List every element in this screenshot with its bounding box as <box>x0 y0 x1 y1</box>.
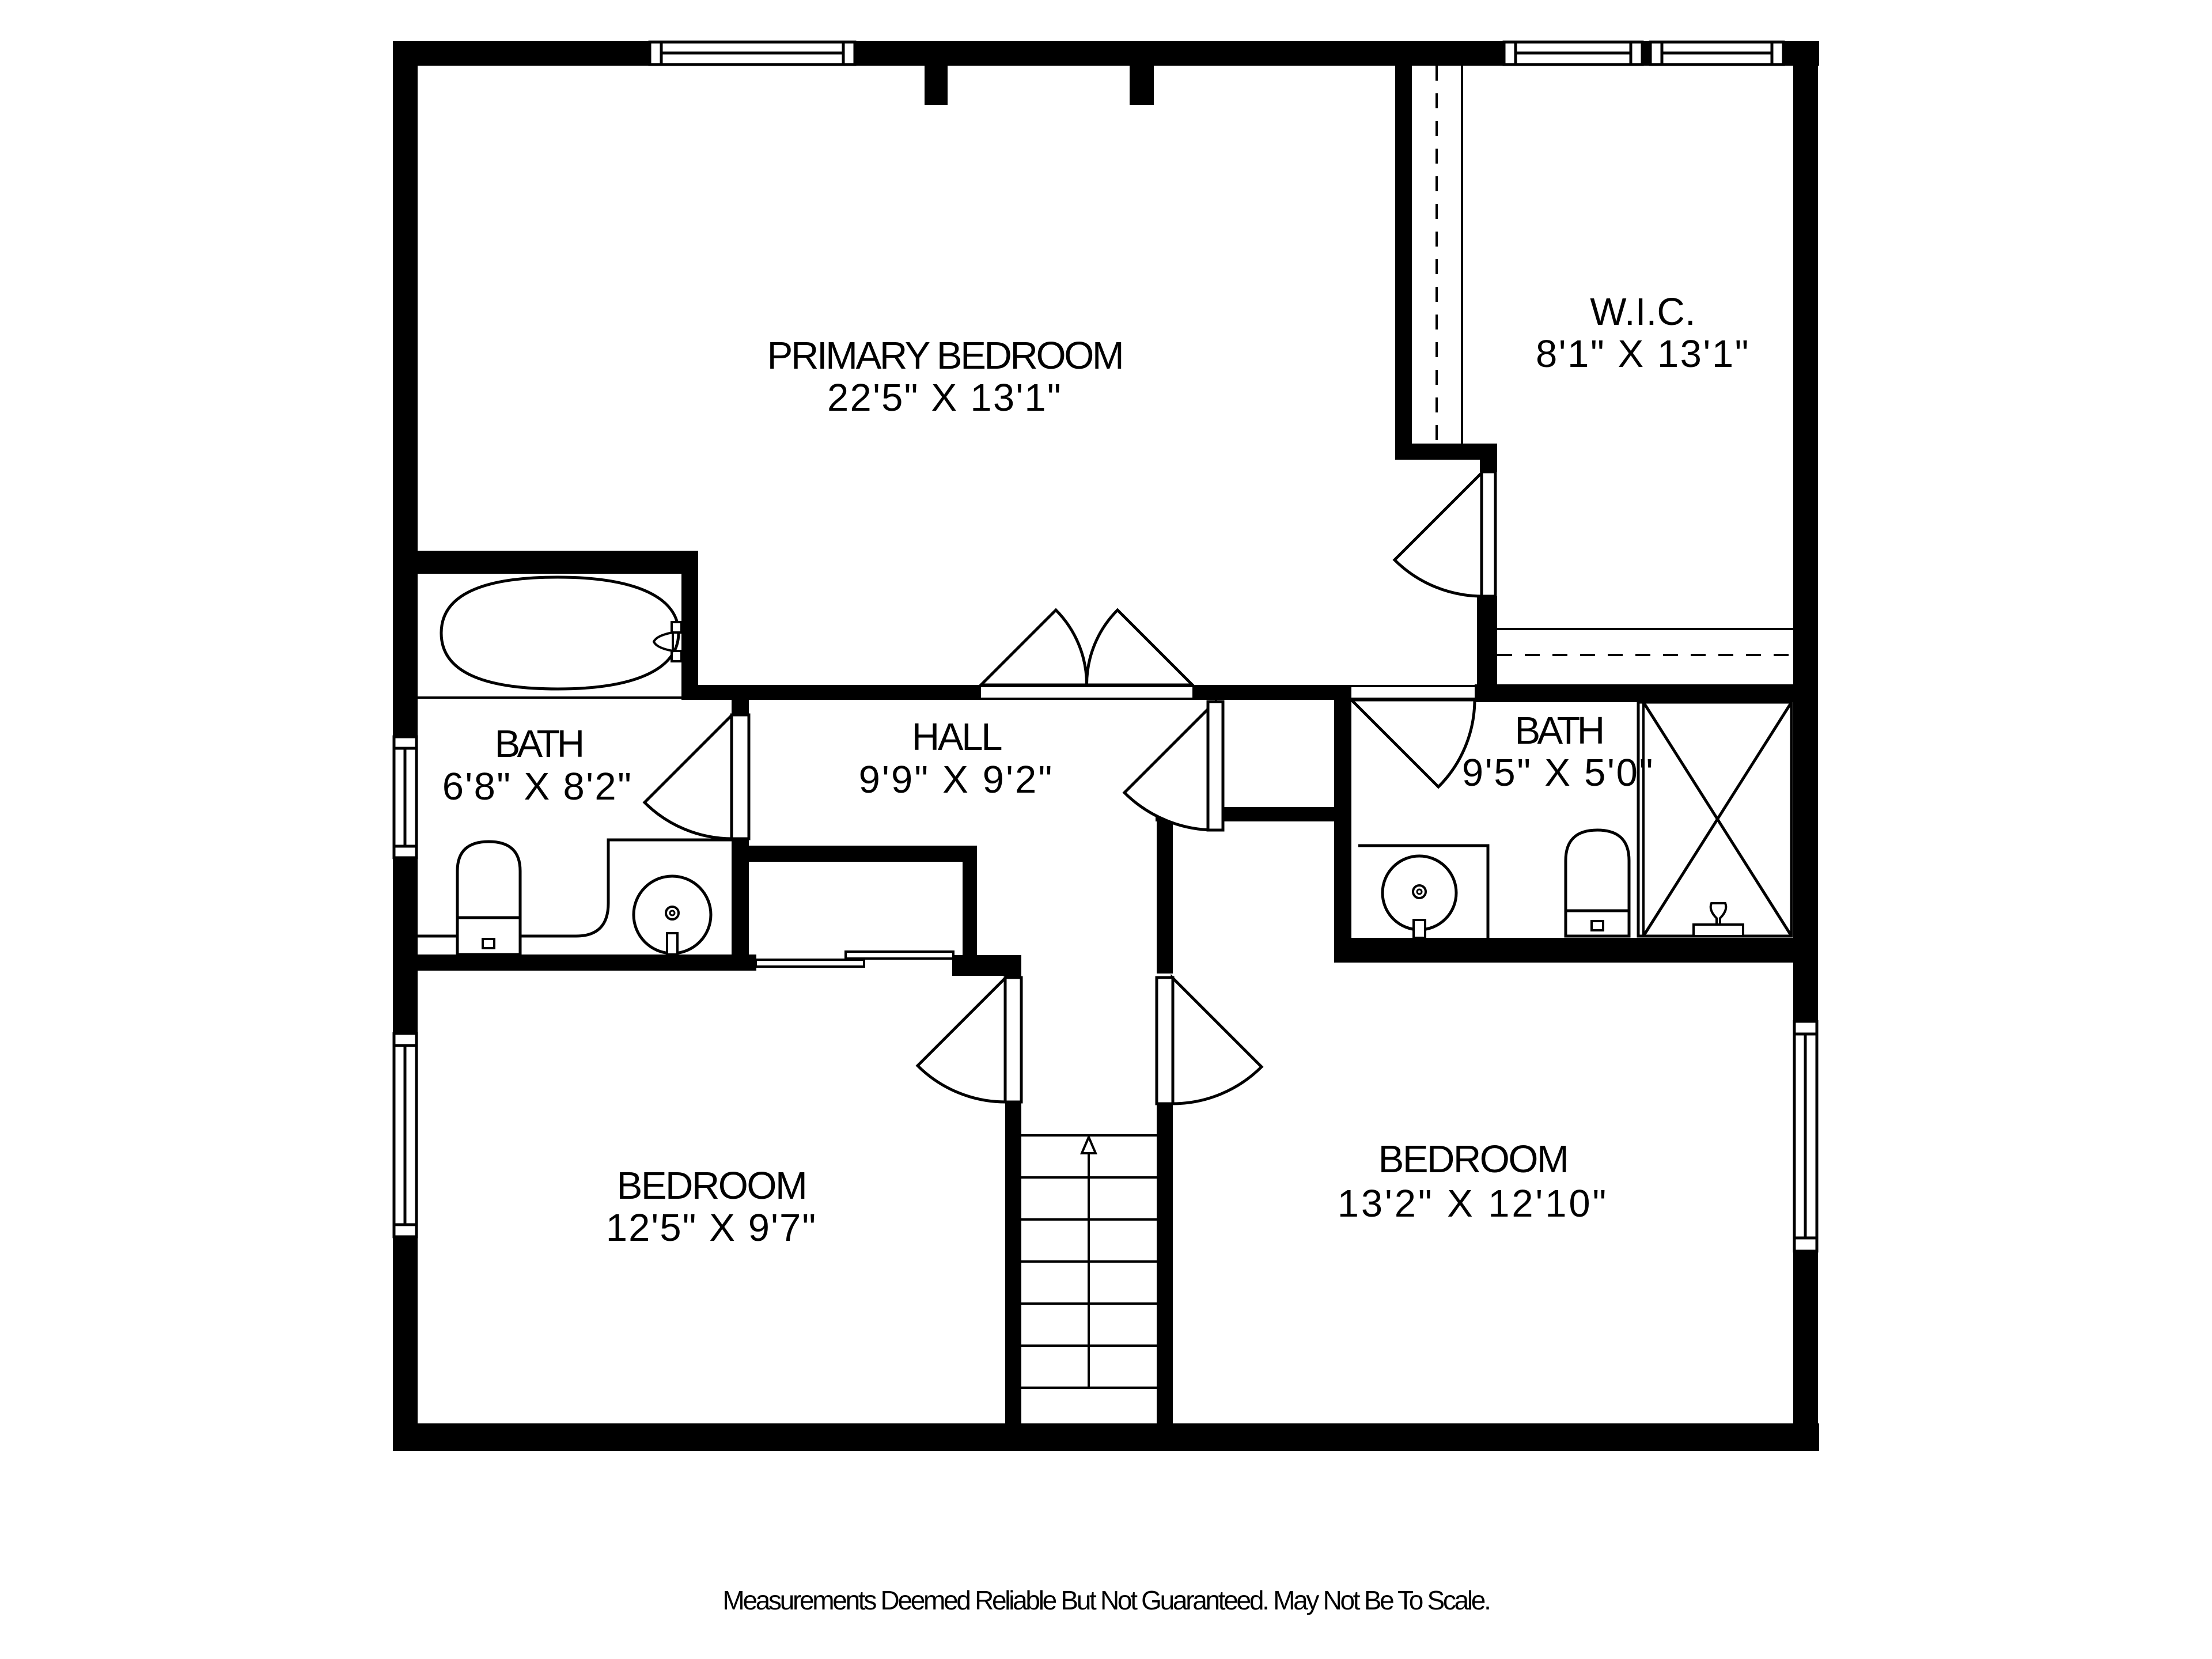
svg-text:6'8" X 8'2": 6'8" X 8'2" <box>442 765 633 808</box>
svg-text:Measurements Deemed Reliable B: Measurements Deemed Reliable But Not Gua… <box>722 1585 1489 1615</box>
svg-text:PRIMARY BEDROOM: PRIMARY BEDROOM <box>767 334 1123 377</box>
svg-text:9'5" X 5'0": 9'5" X 5'0" <box>1462 751 1654 794</box>
svg-text:8'1" X 13'1": 8'1" X 13'1" <box>1536 332 1750 376</box>
svg-text:BEDROOM: BEDROOM <box>1378 1138 1568 1181</box>
svg-text:W.I.C.: W.I.C. <box>1590 290 1696 334</box>
svg-text:BEDROOM: BEDROOM <box>617 1164 806 1207</box>
svg-text:9'9" X 9'2": 9'9" X 9'2" <box>859 758 1054 801</box>
svg-text:13'2" X 12'10": 13'2" X 12'10" <box>1338 1182 1609 1225</box>
svg-text:12'5" X 9'7": 12'5" X 9'7" <box>606 1206 817 1249</box>
svg-text:22'5" X 13'1": 22'5" X 13'1" <box>827 376 1062 419</box>
svg-text:HALL: HALL <box>912 715 1002 759</box>
svg-text:BATH: BATH <box>495 722 582 766</box>
svg-text:BATH: BATH <box>1515 709 1602 752</box>
